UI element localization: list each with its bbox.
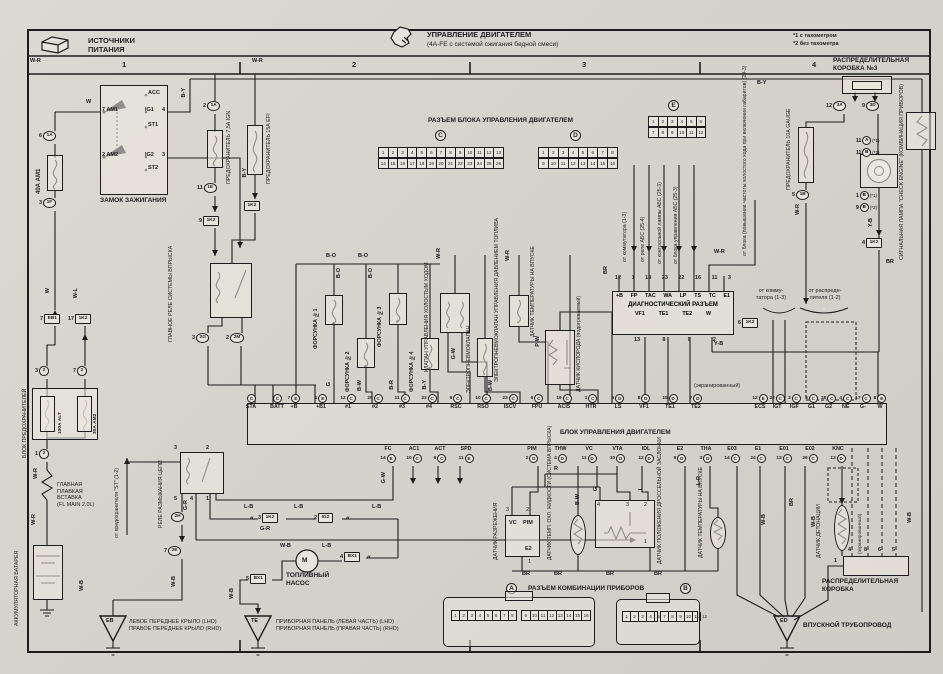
connector-d-row1: 12345678 [538,147,618,158]
pin-cell: 3 [559,148,569,157]
diag-pin-label: FP [631,294,638,299]
junction-box3-inner [852,81,882,90]
wire-label: W-R [506,250,512,261]
fuse-10a-gauge [798,127,814,183]
pin-cell: 10 [685,612,693,621]
ecu-bottom-pins-3: E29DTHA3DE0314CE124CE0113CE0226C [672,447,818,464]
connector-1f-3: 31F [39,198,56,208]
wire-label: BR [606,572,614,578]
vac-pim: PIM [523,520,533,527]
fuse-75a-ign [207,130,223,168]
pin-cell: 2 [549,148,559,157]
pin-cell: 6 [493,611,501,620]
wire-label: W-R [252,59,263,65]
diag-pin-label: TS [694,294,701,299]
pin-cell: 12 [697,128,706,137]
cluster-a-latch [505,591,533,601]
ignition-switch-box [100,85,168,195]
connector-2e-7: 72E [164,546,181,556]
pin-cell: 16 [582,611,590,620]
wire-label: W-B [80,580,86,591]
wire-label: Y-B [869,218,875,227]
engine-control-subtitle: (4A-FE с системой сжигания бедной смеси) [427,41,558,49]
connector-2m-2: 22M [226,333,244,343]
vsv-box [477,338,493,377]
cluster-b-letter: B [680,583,691,594]
wire-label: W-R [796,204,802,215]
fuse-40a-am1 [47,155,63,191]
vac-e2: E2 [525,546,532,553]
wire-label: W-R [32,514,38,525]
ecu-pin: ACT6C [432,447,448,464]
wiring-diagram-page: ИСТОЧНИКИПИТАНИЯ УПРАВЛЕНИЕ ДВИГАТЕЛЕМ (… [0,0,943,674]
fuse-100a-label: 100А ALT [58,394,64,434]
wire-label: L-B [294,505,303,511]
pin-cell: 5 [417,148,427,157]
pin-cell: 11 [539,611,548,620]
ecu-pin: 6DLS [610,393,626,410]
tps-pin-4: 4 [597,502,600,509]
ecu-pin: 15DTE1 [662,393,678,410]
ground-te-note: ПРИБОРНАЯ ПАНЕЛЬ (ЛЕВАЯ ЧАСТЬ) (LHD)ПРИБ… [276,619,399,632]
pin-cell: 7 [661,612,669,621]
battery-label: АККУМУЛЯТОРНАЯ БАТАРЕЯ [14,534,26,626]
connector-bx1-4: 4BX1 [340,552,360,562]
pin-cell: 9 [522,611,531,620]
column-3: 3 [582,60,586,69]
ecu-pin: 7DTE2 [688,393,704,410]
wire-label: W-R [30,59,41,65]
wire-label: BR [604,266,610,274]
pin-cell: 10 [465,148,475,157]
ecu-pin: FC14E [380,447,396,464]
fuse-40a-label: 40А AM1 [36,148,43,194]
distribution-box [843,556,909,576]
ecu-pin: 25C#2 [367,393,383,410]
wire-label: BR [522,572,530,578]
coolant-temp-label: ДАТЧИК ТЕМП. ОХЛ. ЖИДКОСТИ (СИСТЕМА ВПРЫ… [547,490,564,560]
wire-label: Y-B [714,342,723,348]
power-sources-title: ИСТОЧНИКИПИТАНИЯ [88,36,135,54]
ecu-pin: 23CISCV [502,393,518,410]
injector-4-label: ФОРСУНКА №4 [409,334,415,392]
pin-cell: 18 [417,159,427,168]
diag-pin-label: +B [616,294,623,299]
diag-title: ДИАГНОСТИЧЕСКИЙ РАЗЪЕМ [613,302,733,308]
wire-label: G [327,382,333,386]
pin-cell: 4 [569,148,579,157]
pin-cell: 3 [468,611,476,620]
ecu-pin: AC110C [406,447,422,464]
ecu-top-pins-test: 8DVF115DTE17DTE2 [636,393,704,410]
knock-sensor [834,505,850,551]
connector-d-letter: D [570,130,581,141]
pin-cell: 1 [452,611,460,620]
ign-pin-st1: ST1 [148,122,158,129]
knock-sensor-label: ДАТЧИК ДЕТОНАЦИИ [816,496,828,558]
pin-cell: 10 [531,611,540,620]
dist-pin-8: 8 [864,547,867,554]
diag-top-nums: 12119232216113 [612,275,734,282]
relay-pin-2: 2 [206,445,209,452]
ign-pin-ig2: IG2 [145,152,154,159]
distribution-box-label: РАСПРЕДЕЛИТЕЛЬНАЯ КОРОБКА [822,578,898,594]
pin-cell: 8 [509,611,516,620]
wire-label: W [86,100,91,106]
pin-cell: 2 [460,611,468,620]
ecu-pin: SPD11E [458,447,474,464]
ecu-pin: E0113C [776,447,792,464]
pin-cell: 11 [559,159,569,168]
coolant-temp-sensor [570,515,586,555]
ign-pin-ig2-num: 3 [162,152,165,159]
pin-cell: 25 [485,159,495,168]
connector-d-row2: 910111213141516 [538,158,618,169]
wire-label: L [639,487,645,490]
connector-1a-2: 21A [203,101,220,111]
tps-pin-1: 1 [644,539,647,546]
connector-1k2-4: 41K2 [862,238,882,248]
ecu-connector-title: РАЗЪЕМ БЛОКА УПРАВЛЕНИЯ ДВИГАТЕЛЕМ [428,117,573,125]
diag-pin-label: TE1 [659,312,669,317]
pin-cell: 12 [569,159,579,168]
diag-pin-label: VF1 [635,312,645,317]
pin-cell: 14 [379,159,389,168]
connector-3a-12: 123A [826,101,846,111]
pin-cell: 4 [476,611,484,620]
connector-e-row1: 123456 [648,116,706,127]
ecu-pin: PIM2D [524,447,540,464]
cluster-a-row2: 910111213141516 [521,610,591,621]
diag-pin-label: W [706,312,711,317]
shielded-label: (экранированный) [694,383,740,390]
pin-cell: 2 [631,612,639,621]
injector-1-label: ФОРСУНКА №1 [313,291,319,349]
diagnostic-connector-box: +BFPTACWALPTSTCE1 ДИАГНОСТИЧЕСКИЙ РАЗЪЕМ… [612,291,734,335]
pin-cell: 11 [687,128,697,137]
pin-cell: 4 [678,117,688,126]
ground-te-letter: TE [251,619,258,625]
ign-pin-st2: ST2 [148,165,158,172]
fuse-75a-label: ПРЕДОХРАНИТЕЛЬ 7,5А IGN [226,112,232,184]
ign-pin-ig1-num: 4 [162,107,165,114]
from-abs-relay-label: от реле АБС (25-4) [640,170,646,262]
vacuum-sensor-label: ДАТЧИК РАЗРЕЖЕНИЯ [493,498,505,560]
ecu-pin: IDL12D [638,447,654,464]
relay-pin-1: 1 [206,496,209,503]
pin-cell: 10 [678,128,688,137]
pin-cell: 13 [557,611,566,620]
ignition-switch-label: ЗАМОК ЗАЖИГАНИЯ [100,197,166,205]
fuse-gauge-label: ПРЕДОХРАНИТЕЛЬ 10А GAUGE [786,112,797,190]
pin-cell: 10 [549,159,559,168]
wire-label: W-R [437,248,443,259]
connector-2h: 2H [170,512,184,522]
note-tachometer: *1 с тахометром [793,33,837,40]
ecu-pin: E124C [750,447,766,464]
wire-label: B-Y [182,88,188,97]
injector-2-box [357,338,375,368]
pin-cell: 9 [456,148,466,157]
wire-label: BR [554,572,562,578]
ecu-pin: 23C#4 [421,393,437,410]
oxygen-sensor-label: ДАТЧИК КИСЛОРОДА (подогреваемый) [576,296,588,392]
pin-cell: 1 [379,148,389,157]
engine-control-title: УПРАВЛЕНИЕ ДВИГАТЕЛЕМ [427,30,531,39]
wire-label: W-L [74,288,80,298]
pin-cell: 8 [608,148,617,157]
tps-pin-3: 3 [626,502,629,509]
diag-pin-num: 19 [645,275,651,282]
dist-pin-1: 1 [834,558,837,565]
connector-1k2-9: 91K2 [199,216,219,226]
dist-pin-4: 4 [848,547,851,554]
pin-cell: 14 [565,611,574,620]
column-1: 1 [122,60,126,69]
wire-label: B-O [369,268,375,278]
diag-pin-num: 11 [712,275,718,282]
connector-1k2-6: 61K2 [738,318,758,328]
from-commutator2-label: от комму- татора (1-3) [750,288,792,301]
pin-cell: 19 [427,159,437,168]
wire-label: W-B [280,544,291,550]
connector-2-7: 72 [73,366,87,376]
ecu-pin: 3CIGF [786,393,802,410]
diag-pin-num: 22 [678,275,684,282]
ecu-pin: CBATT [269,393,285,410]
from-abs-ecu-label: от блока управления АБС (25-3) [673,166,685,264]
vac-vc: VC [509,520,517,527]
wire-label: W-B [230,588,236,599]
battery-box [33,545,63,600]
pin-cell: 12 [485,148,495,157]
vsv-fuel-pressure-box [509,295,529,327]
wire-label: G-W [382,472,388,483]
pin-cell: 9 [677,612,685,621]
wire-label: G-R [260,527,270,533]
pin-cell: 5 [485,611,493,620]
cluster-b-row2: 789101112 [660,611,698,622]
ecu-top-pins-sta: CSTACBATT [243,393,285,410]
pin-cell: 3 [398,148,408,157]
pin-cell: 13 [494,148,503,157]
continuation-arrow: « [250,515,254,522]
wire-label: W [46,288,52,293]
cluster-connector-b-shell [616,599,700,645]
wire-label: B-O [358,254,368,260]
ecu-pin: 17CG- [855,393,871,410]
ecu-pin: 4CNE [838,393,854,410]
connector-3d-9: 93D [862,101,879,111]
ecu-pin: 1E+B1 [313,393,329,410]
intake-temp-sensor [710,517,726,549]
diag-pin-num: 9 [688,337,691,344]
ign-pin-am1: 7 AM1 [102,107,118,114]
cluster-connector-a-shell [443,597,595,647]
wire-label: B-Y [757,81,766,87]
cluster-a-row1: 12345678 [451,610,517,621]
oxygen-sensor-box [545,330,575,385]
cluster-title: РАЗЪЕМ КОМБИНАЦИИ ПРИБОРОВ [528,585,644,593]
connector-1b-5: 51B [792,190,809,200]
wire-label: W-B [172,576,178,587]
pin-cell: 11 [693,612,701,621]
lamp-connector-row: 9B(*2) [856,203,877,212]
intake-manifold-label: ВПУСКНОЙ ТРУБОПРОВОД [803,622,891,630]
ecu-band-label: БЛОК УПРАВЛЕНИЯ ДВИГАТЕЛЕМ [560,429,671,437]
ecu-bottom-pins-1: FC14EAC110CACT6CSPD11E [380,447,474,464]
ecu-pin: 12EECS [752,393,768,410]
pin-cell: 8 [659,128,669,137]
ecu-pin: THA3D [698,447,714,464]
ecu-top-pins-main: 7E+B1E+B112C#125C#211C#323C#49CRSC10CRSO… [286,393,626,410]
continuation-arrow: « [346,515,350,522]
diag-bottom-row: VF1TE1TE2W [613,308,733,317]
fuse-block-label: БЛОК ПРЕДОХРАНИТЕЛЕЙ [22,358,28,458]
ign-pin-ig1: IG1 [145,107,154,114]
wire-label: B-W [576,494,582,505]
relay-pin-5: 5 [174,496,177,503]
pin-cell: 24 [475,159,485,168]
ecu-pin: VC11D [581,447,597,464]
wire-label: BR [654,572,662,578]
wire-label: W-B [908,512,914,523]
wire-label: B-O [337,268,343,278]
main-efi-relay-box [210,263,252,318]
connector-1a-6: 61A [39,131,56,141]
ecu-pin: 8EW [872,393,888,410]
pin-cell: 1 [623,612,631,621]
cluster-b-latch [646,593,670,603]
ecu-top-pins-ign: 12EECS22CIGT3CIGF5CG118CG24CNE17CG-8EW [752,393,888,410]
pin-cell: 12 [548,611,557,620]
ecu-pin: 8DVF1 [636,393,652,410]
diag-pin-num: 1 [632,275,635,282]
wire-label: G-W [452,348,458,359]
main-fusible-link-label: ГЛАВНАЯ ПЛАВКАЯ ВСТАВКА (FL MAIN 2.0L) [57,482,94,508]
pin-cell: 11 [475,148,485,157]
note-no-tachometer: *2 без тахометра [793,41,839,48]
ecu-pin: 18CG2 [821,393,837,410]
fuse-15a-label: ПРЕДОХРАНИТЕЛЬ 15А EFI [266,112,272,184]
pin-cell: 23 [465,159,475,168]
vac-n3: 3 [506,507,509,514]
pin-cell: 2 [389,148,399,157]
ecu-pin: CSTA [243,393,259,410]
connector-1k2-3: 31K2 [258,513,278,523]
ecu-pin: 9CRSC [448,393,464,410]
wire-label: L-R [697,476,703,485]
vac-n2: 2 [526,507,529,514]
idle-control-valve-label: КЛАПАН УПРАВЛЕНИЯ ХОЛОСТЫМ ХОДОМ [424,252,436,372]
fuse-100a-alt [40,396,55,432]
ecu-pin: 22CIGT [769,393,785,410]
pin-cell: 3 [639,612,647,621]
pin-cell: 5 [579,148,589,157]
from-distributor-label: от распреде- лителя (1-2) [798,288,852,301]
ign-pin-am2: 2 AM2 [102,152,118,159]
fuel-pump-motor-m: M [302,557,307,565]
wire-label: B-W [358,380,364,391]
diag-pin-num: 16 [695,275,701,282]
vsv-label: ЭЛЕКТРОПНЕВМОКЛАПАН [466,293,472,393]
ecu-pin: 1CHTR [583,393,599,410]
from-st-fuse-label: от предохранителя "ST" (1-2) [114,424,120,538]
lamp-connector-row: 11B(*2) [856,148,880,157]
ground-ed-letter: ED [780,619,788,625]
connector-e-row2: 789101112 [648,127,706,138]
vsv-fuel-pressure-label: ЭЛЕКТРОПНЕВМОКЛАПАН УПРАВЛЕНИЯ ДАВЛЕНИЕМ… [494,250,506,382]
vac-n1: 1 [528,559,531,566]
injector-1-box [325,295,343,325]
junction-box3-title: РАСПРЕДЕЛИТЕЛЬНАЯ КОРОБКА №3 [833,57,909,73]
pin-cell: 6 [697,117,706,126]
fuse-15a-efi [247,125,263,175]
ecu-pin: 11C#3 [394,393,410,410]
pin-cell: 15 [598,159,608,168]
diag-pin-num: 8 [662,337,665,344]
engine-icon [388,24,414,50]
connector-2-3: 32 [35,366,49,376]
check-engine-lamp-box [860,154,898,188]
ecu-pin: 5CG1 [803,393,819,410]
wire-label: B-R [390,380,396,390]
diag-pin-label: E1 [724,294,730,299]
pin-cell: 13 [579,159,589,168]
relay-pin-3: 3 [174,445,177,452]
ecu-pin: E29D [672,447,688,464]
relay-pin-4: 4 [190,496,193,503]
connector-2-1: 12 [35,449,49,459]
pin-cell: 15 [389,159,399,168]
pin-cell: 14 [588,159,598,168]
connector-1k2-efi: 1K2 [243,201,260,211]
from-commutator-label: от коммутатора (1-3) [622,166,628,262]
diag-bottom-nums: 13892 [634,337,716,344]
wire-label: B-Y [243,168,249,177]
tps-pin-2: 2 [644,502,647,509]
fuse-30a-am2 [77,396,92,432]
connector-eb1-7: 7EB1 [40,314,60,324]
connector-c-letter: C [435,130,446,141]
pin-cell: 9 [539,159,549,168]
pin-cell: 7 [437,148,447,157]
diag-pin-num: 3 [728,275,731,282]
wire-label: BR [790,498,796,506]
column-2: 2 [352,60,356,69]
lamp-connector-row: 11A(*1) [856,136,880,145]
wire-label: R [554,467,558,473]
circuit-opening-relay-box [180,452,224,494]
pin-cell: 16 [398,159,408,168]
connector-ig2-2: 2IG2 [314,513,333,523]
diag-pin-label: TAC [645,294,656,299]
pin-cell: 8 [446,148,456,157]
diag-pin-label: TE2 [682,312,692,317]
wire-label: W-B [762,514,768,525]
pin-cell: 3 [668,117,678,126]
lamp-connector-row: 1B(*1) [856,191,877,200]
main-relay-label: ГЛАВНОЕ РЕЛЕ СИСТЕМЫ ВПРЫСКА [168,250,180,342]
pin-cell: 1 [539,148,549,157]
pin-cell: 22 [456,159,466,168]
ecu-bottom-pins-2: PIM2DTHW4DVC11DVTA10DIDL12D [524,447,654,464]
wire-label: B-O [326,254,336,260]
pin-cell: 7 [598,148,608,157]
pin-cell: 16 [608,159,617,168]
ign-pin-acc: ACC [148,90,160,97]
connector-bx1-5: 5BX1 [246,574,266,584]
